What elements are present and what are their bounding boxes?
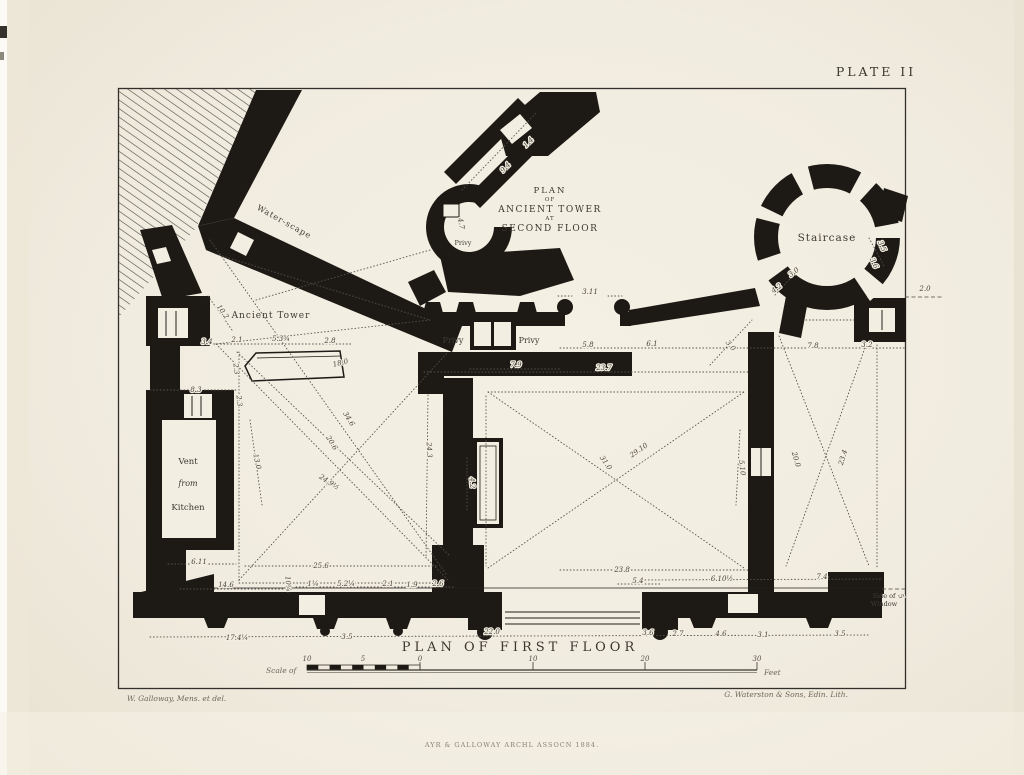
dim-label: 24.3 xyxy=(425,441,434,459)
imprint: AYR & GALLOWAY ARCHL ASSOCN 1884. xyxy=(424,741,599,749)
buttress xyxy=(204,618,228,628)
scale-tick: 30 xyxy=(753,655,762,663)
dim-label: 3.0 xyxy=(787,266,801,279)
privy-window xyxy=(470,318,516,350)
inset-title-line5: SECOND FLOOR xyxy=(502,224,599,234)
wall-left-mid xyxy=(150,346,180,394)
wall-spine-foot xyxy=(432,545,484,600)
dim-label: 7.4 xyxy=(816,573,827,581)
scale-tick: 5 xyxy=(361,655,366,663)
privy-inset-label: Privy xyxy=(455,239,472,247)
scale-tick: 0 xyxy=(418,655,423,663)
credit-surveyor: W. Galloway, Mens. et del. xyxy=(127,694,226,703)
dim-label: 2.8 xyxy=(323,337,336,345)
dim-label: 23.8 xyxy=(613,566,630,574)
dim-label: 5.2¼ xyxy=(337,580,355,588)
dim-label: 3.1 xyxy=(757,631,768,639)
dim-label: 24.9½ xyxy=(317,472,341,492)
inset-lower-mass xyxy=(440,248,574,296)
inset-window-sq xyxy=(443,204,459,217)
staircase-label: Staircase xyxy=(798,232,857,244)
dim-label: 10.2 xyxy=(215,303,231,321)
dim-label: 6.1 xyxy=(646,340,657,348)
window-inset xyxy=(158,308,188,338)
dim-label: 1.9 xyxy=(406,581,418,589)
dim-label: 5 xyxy=(896,593,905,600)
dim-label: 10¼ xyxy=(283,576,292,593)
vent-label-line3: Kitchen xyxy=(171,503,205,513)
dim-label: 2.3 xyxy=(231,362,240,375)
scale-tick: 10 xyxy=(529,655,538,663)
dim-label: 5.10 xyxy=(737,460,747,477)
dim-label: 2.1 xyxy=(230,336,242,344)
gate-bollard xyxy=(557,299,573,315)
buttress-foot xyxy=(393,626,403,636)
dim-label: 23.7 xyxy=(595,364,612,372)
dim-label: 2.6 xyxy=(431,580,444,588)
dim-label: 1¼ xyxy=(307,580,318,588)
dim-label: 13.0 xyxy=(251,453,262,470)
plate-page: PLATE II xyxy=(0,0,1024,775)
dim-label: 4.7 xyxy=(456,216,466,230)
dim-label: 34.6 xyxy=(341,410,356,428)
dim-label: 6.11 xyxy=(191,558,207,566)
plate-drawing: PLATE II xyxy=(0,0,1024,775)
vent-label-line2: from xyxy=(177,479,198,488)
dim-label: 4.2 xyxy=(467,476,476,489)
privy-right-label: Privy xyxy=(519,336,540,345)
dim-label: 23.4 xyxy=(837,449,850,467)
buttress xyxy=(806,618,832,628)
wall-privy-bump1 xyxy=(423,302,443,313)
dim-label: 3.5 xyxy=(834,630,846,638)
dim-label: 22.0 xyxy=(483,628,500,636)
main-title: PLAN OF FIRST FLOOR xyxy=(402,640,639,655)
dim-label: 8.3 xyxy=(190,386,202,394)
door-gap xyxy=(728,594,758,613)
dim-label: 3.4 xyxy=(201,338,212,346)
inset-tail xyxy=(408,270,446,306)
dim-label: 7.9 xyxy=(510,361,522,369)
inset-title-line4: AT xyxy=(544,216,554,222)
buttress-foot xyxy=(320,626,330,636)
dim-label: 29.10 xyxy=(628,441,650,460)
wall-privy-bump2 xyxy=(456,302,476,313)
dim-label: 25.6 xyxy=(312,562,329,570)
vent-label-line1: Vent xyxy=(177,457,198,467)
dim-label: 2.7 xyxy=(671,630,684,638)
scale-tick: 10 xyxy=(303,655,312,663)
gate-bollard xyxy=(614,299,630,315)
dim-label: 14.6 xyxy=(218,581,234,589)
wall-bottom-right-block xyxy=(828,572,884,594)
scale-bar: Scale of 10 5 0 10 20 30 Feet xyxy=(266,655,782,677)
dim-label: 20.6 xyxy=(324,433,340,452)
inset-title-line3: ANCIENT TOWER xyxy=(497,205,602,215)
dim-label: 5.8 xyxy=(582,341,594,349)
dim-label: 4.6 xyxy=(714,630,727,638)
plate-label: PLATE II xyxy=(836,64,916,79)
credit-lithographer: G. Waterston & Sons, Edin. Lith. xyxy=(724,690,848,699)
dim-label: 2.1 xyxy=(381,580,393,588)
side-of-window-label-1: Side of xyxy=(873,592,897,600)
dim-label: 7.8 xyxy=(807,342,819,350)
ancient-tower-label: Ancient Tower xyxy=(231,311,311,321)
dim-label: 2.3 xyxy=(234,394,243,407)
wall-gate-band xyxy=(629,288,760,326)
privy-left-label: Privy xyxy=(443,336,464,345)
dim-label: 3.0 xyxy=(724,339,738,353)
dim-label: 5.3¾ xyxy=(272,335,290,343)
buttress xyxy=(690,618,716,628)
inset-title-line1: PLAN xyxy=(534,186,567,196)
scale-suffix: Feet xyxy=(763,668,782,677)
dim-label: 3.11 xyxy=(582,288,598,296)
inset-title-line2: OF xyxy=(545,197,555,203)
door-gap xyxy=(299,595,325,615)
dim-label: 5.4 xyxy=(632,577,643,585)
dim-label: 3.6 xyxy=(642,629,654,637)
dim-label: 17.4¼ xyxy=(226,634,249,642)
window-inset xyxy=(184,394,212,418)
wall-privy-bump3 xyxy=(517,302,537,313)
dim-label: 3.2 xyxy=(861,341,873,349)
scale-prefix: Scale of xyxy=(266,666,298,675)
side-of-window-label-2: Window xyxy=(871,600,898,608)
wall-privy-bottom-left xyxy=(418,352,444,394)
dim-label: 2.0 xyxy=(918,285,931,293)
dim-label: 6.10½ xyxy=(711,575,734,583)
wall-staircase-pier xyxy=(779,296,808,338)
dim-label: 3.5 xyxy=(341,633,353,641)
trough-detail xyxy=(245,351,344,381)
scale-tick: 20 xyxy=(640,655,650,663)
dim-label: 20.0 xyxy=(790,450,803,469)
inset-title: PLAN OF ANCIENT TOWER AT SECOND FLOOR xyxy=(497,186,602,234)
